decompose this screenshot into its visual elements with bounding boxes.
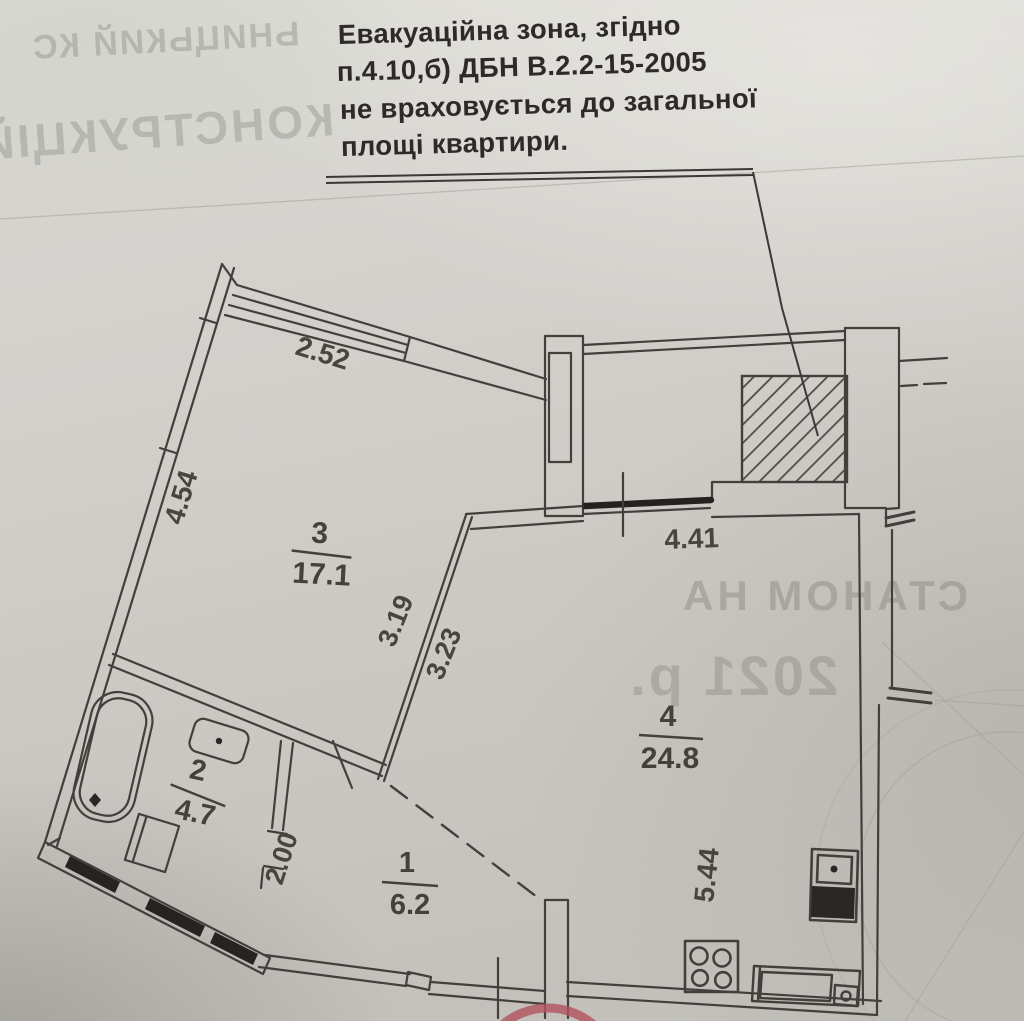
ghost-text-line1: ЬНИЦЬКИЙ КС [30, 14, 300, 67]
room-label-3: 3 17.1 [290, 516, 354, 593]
annotation-underline [326, 169, 753, 183]
room-4-area: 24.8 [641, 742, 699, 775]
kitchen-sink [834, 985, 858, 1006]
floorplan-photo: ЬНИЦЬКИЙ КС КОНСТРУКЦІЙ" СТАНОМ НА 2021 … [0, 0, 1024, 1021]
dim-top-wall-room4: 4.41 [664, 522, 720, 555]
kitchen-counter [752, 966, 860, 1006]
right-pier [845, 328, 947, 508]
bathtub [68, 687, 158, 828]
washing-machine [125, 814, 179, 872]
floor-plan-drawing: ЬНИЦЬКИЙ КС КОНСТРУКЦІЙ" СТАНОМ НА 2021 … [0, 0, 1024, 1021]
fixtures [68, 687, 860, 1006]
bleed-through-text: ЬНИЦЬКИЙ КС КОНСТРУКЦІЙ" СТАНОМ НА 2021 … [0, 14, 1024, 1021]
evacuation-zone-hatch [742, 376, 847, 482]
ghost-watermark-arcs [816, 642, 1024, 1021]
annotation-line1: Евакуаційна зона, згідно [337, 9, 681, 50]
dim-diagonal-room-side: 3.19 [372, 591, 420, 651]
fridge [810, 849, 858, 922]
dim-bathroom-passage: 2.00 [259, 829, 304, 888]
dashed-opening [391, 786, 537, 897]
room-3-area: 17.1 [291, 557, 351, 593]
paper-crease-line [0, 156, 1024, 219]
room-1-number: 1 [399, 847, 415, 879]
room-labels: 3 17.1 4 24.8 1 6.2 2 4.7 [162, 516, 703, 921]
room-label-1: 1 6.2 [382, 847, 438, 921]
diagonal-wall [378, 506, 583, 781]
room-label-4: 4 24.8 [639, 700, 703, 775]
bathroom-walls [109, 654, 386, 888]
ghost-text-line3: СТАНОМ НА [679, 572, 968, 619]
stove [685, 941, 738, 992]
room4-top-wall [583, 331, 845, 354]
room-label-2: 2 4.7 [162, 750, 234, 834]
dim-kitchen-right-wall: 5.44 [688, 846, 725, 904]
room-1-area: 6.2 [390, 889, 430, 921]
dim-left-wall: 4.54 [158, 466, 204, 528]
annotation-line3: не враховується до загальної [340, 82, 759, 125]
room-2-number: 2 [187, 753, 209, 788]
dimension-labels: 2.52 4.54 3.19 3.23 4.41 2.00 5.44 [158, 330, 725, 904]
room-4-number: 4 [660, 700, 677, 733]
pier-shaft [545, 336, 583, 516]
hall-bottom-wall [259, 955, 545, 1018]
window-band [225, 285, 546, 400]
entrance-wall-band [38, 838, 270, 974]
annotation-line4: площі квартири. [341, 125, 569, 162]
room-3-number: 3 [310, 517, 328, 551]
annotation-note: Евакуаційна зона, згідно п.4.10,б) ДБН В… [335, 7, 759, 162]
pier-stub [545, 900, 568, 1018]
ghost-text-line4: 2021 р. [627, 644, 838, 707]
ghost-text-line2: КОНСТРУКЦІЙ" [0, 93, 336, 171]
bathtub-drain [89, 793, 101, 807]
annotation-line2: п.4.10,б) ДБН В.2.2-15-2005 [336, 46, 707, 87]
